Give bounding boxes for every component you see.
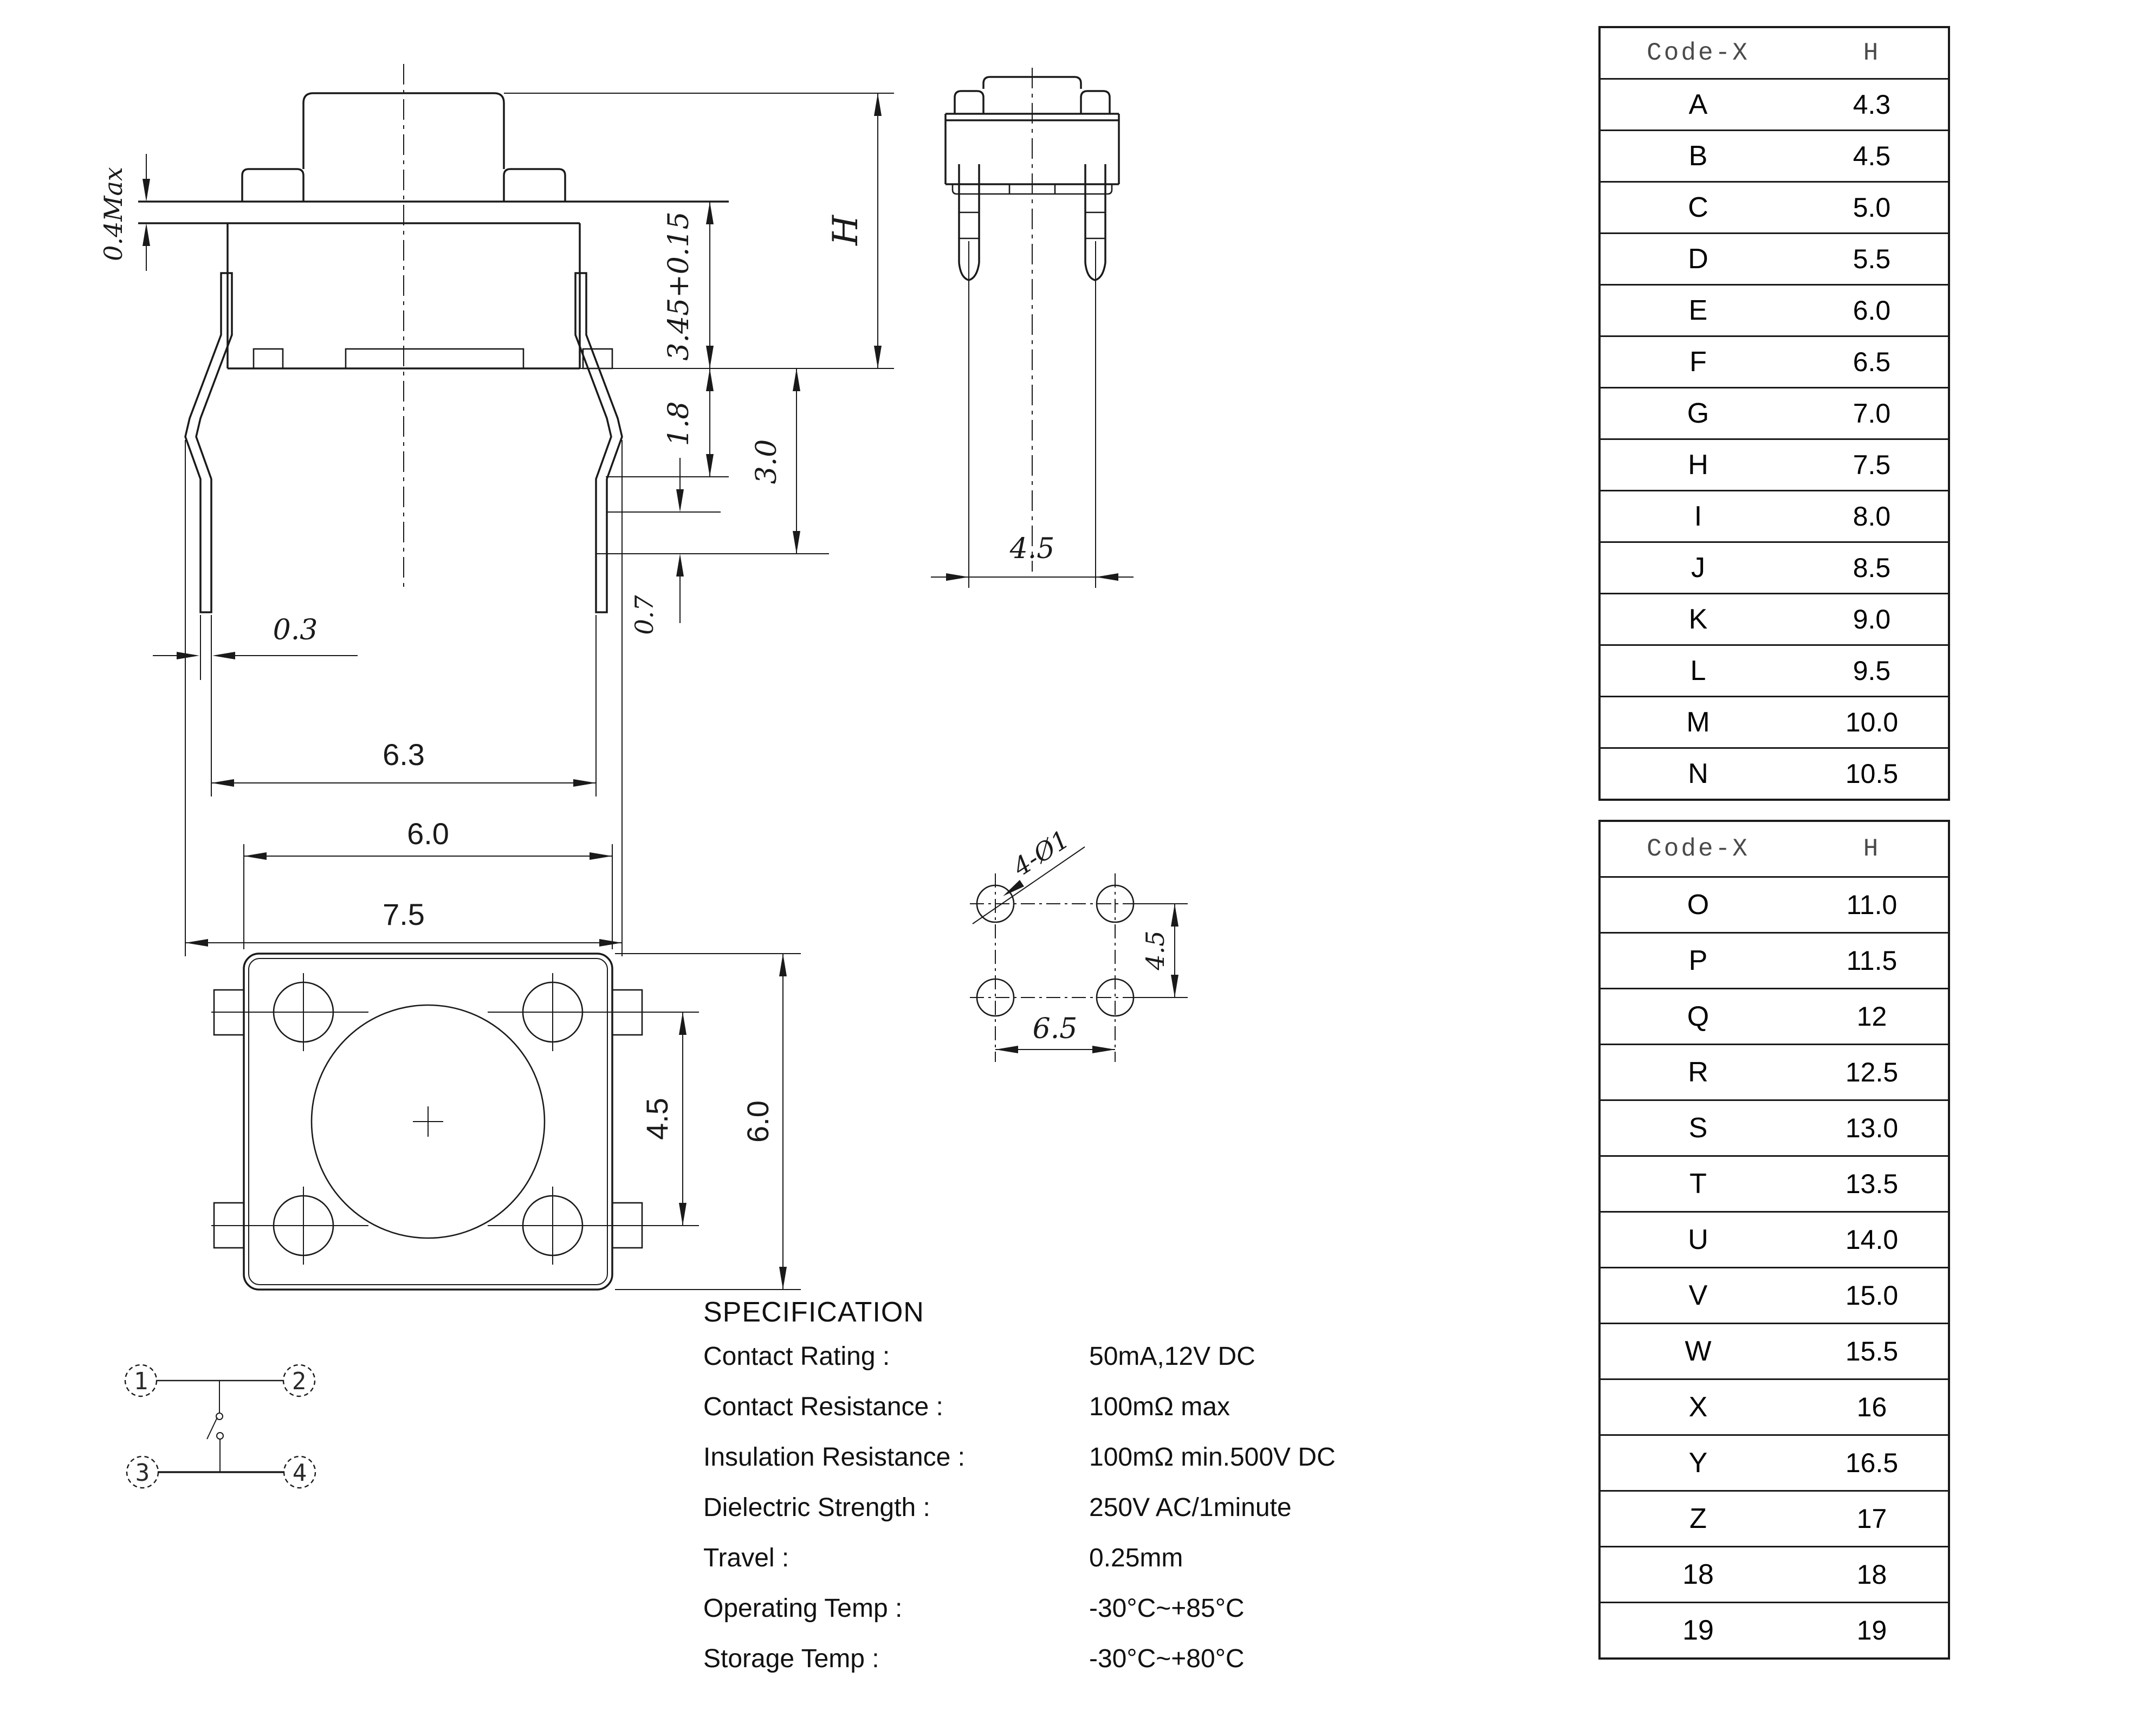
table-row: D5.5	[1601, 232, 1948, 284]
spec-value: 50mA,12V DC	[1089, 1342, 1516, 1372]
spec-value: 0.25mm	[1089, 1543, 1516, 1573]
code-cell: E	[1601, 286, 1796, 335]
table-row: M10.0	[1601, 696, 1948, 747]
spec-label: Dielectric Strength :	[703, 1493, 1089, 1523]
schematic-wires	[156, 1381, 284, 1472]
h-cell: 12	[1796, 989, 1948, 1044]
side-view-legs	[185, 273, 829, 612]
dim-cap-label: 0.4Max	[99, 167, 128, 261]
h-cell: 6.5	[1796, 337, 1948, 387]
h-cell: 14.0	[1796, 1213, 1948, 1267]
spec-label: Contact Resistance :	[703, 1392, 1089, 1422]
h-cell: 13.5	[1796, 1157, 1948, 1211]
h-cell: 5.5	[1796, 234, 1948, 284]
table-row: A4.3	[1601, 78, 1948, 129]
pin1-label: 1	[134, 1368, 148, 1395]
pin3-label: 3	[135, 1459, 150, 1487]
h-cell: 7.5	[1796, 440, 1948, 490]
specification-block: SPECIFICATION Contact Rating : 50mA,12V …	[703, 1296, 1516, 1694]
spec-label: Storage Temp :	[703, 1644, 1089, 1674]
code-cell: X	[1601, 1380, 1796, 1434]
code-cell: 19	[1601, 1603, 1796, 1657]
h-cell: 15.0	[1796, 1268, 1948, 1323]
h-cell: 16	[1796, 1380, 1948, 1434]
col-header-code: Code-X	[1601, 822, 1796, 876]
h-cell: 17	[1796, 1492, 1948, 1546]
table-row: L9.5	[1601, 644, 1948, 696]
table-row: E6.0	[1601, 284, 1948, 335]
h-cell: 19	[1796, 1603, 1948, 1657]
spec-row: Contact Resistance : 100mΩ max	[703, 1392, 1516, 1442]
code-cell: D	[1601, 234, 1796, 284]
code-cell: B	[1601, 131, 1796, 181]
dim-step-label: 0.7	[630, 595, 659, 635]
dim-pin-spacing-label: 4.5	[1009, 533, 1055, 565]
code-cell: F	[1601, 337, 1796, 387]
code-cell: N	[1601, 749, 1796, 799]
dim-total-height-label: H	[826, 215, 866, 246]
code-cell: U	[1601, 1213, 1796, 1267]
table-row: T13.5	[1601, 1155, 1948, 1211]
h-cell: 12.5	[1796, 1045, 1948, 1099]
dim-base-label: 1.8	[663, 401, 695, 446]
spec-row: Travel : 0.25mm	[703, 1543, 1516, 1594]
pcb-layout-drawing: 4-Ø1 4.5 6.5	[948, 813, 1571, 1327]
dim-hole-spacing-label: 4.5	[640, 1098, 674, 1140]
h-cell: 8.5	[1796, 543, 1948, 593]
table-row: H7.5	[1601, 438, 1948, 490]
table-row: I8.0	[1601, 490, 1948, 541]
code-cell: O	[1601, 878, 1796, 932]
spec-row: Contact Rating : 50mA,12V DC	[703, 1342, 1516, 1392]
dim-pcb-vertical-label: 4.5	[1141, 930, 1170, 970]
table-row: N10.5	[1601, 747, 1948, 799]
dim-top-width-label: 6.0	[407, 817, 449, 851]
col-header-h: H	[1796, 822, 1948, 876]
code-cell: M	[1601, 697, 1796, 747]
h-cell: 10.5	[1796, 749, 1948, 799]
code-cell: I	[1601, 491, 1796, 541]
side-view-body-outline	[138, 93, 729, 368]
table-row: G7.0	[1601, 387, 1948, 438]
code-cell: Z	[1601, 1492, 1796, 1546]
h-cell: 7.0	[1796, 388, 1948, 438]
h-cell: 11.0	[1796, 878, 1948, 932]
table-row: O11.0	[1601, 876, 1948, 932]
table-row: X16	[1601, 1378, 1948, 1434]
spec-label: Operating Temp :	[703, 1594, 1089, 1624]
code-cell: K	[1601, 594, 1796, 644]
specification-title: SPECIFICATION	[703, 1296, 1516, 1329]
code-height-table-2: Code-X H O11.0 P11.5 Q12 R12.5 S13.0 T13…	[1598, 820, 1950, 1660]
h-cell: 10.0	[1796, 697, 1948, 747]
h-cell: 15.5	[1796, 1324, 1948, 1378]
switch-symbol-icon	[207, 1413, 223, 1439]
spec-value: -30°C~+85°C	[1089, 1594, 1516, 1624]
h-cell: 18	[1796, 1547, 1948, 1602]
h-cell: 4.5	[1796, 131, 1948, 181]
spec-row: Operating Temp : -30°C~+85°C	[703, 1594, 1516, 1644]
spec-row: Insulation Resistance : 100mΩ min.500V D…	[703, 1442, 1516, 1493]
circuit-schematic: 1 2 3 4	[81, 1327, 515, 1571]
code-cell: L	[1601, 646, 1796, 696]
spec-row: Dielectric Strength : 250V AC/1minute	[703, 1493, 1516, 1543]
table-row: U14.0	[1601, 1211, 1948, 1267]
spec-value: 250V AC/1minute	[1089, 1493, 1516, 1523]
code-cell: Y	[1601, 1436, 1796, 1490]
h-cell: 5.0	[1796, 183, 1948, 232]
code-cell: T	[1601, 1157, 1796, 1211]
h-cell: 11.5	[1796, 934, 1948, 988]
pcb-holes-label: 4-Ø1	[1007, 824, 1074, 882]
table-row: K9.0	[1601, 593, 1948, 644]
table-header-row: Code-X H	[1601, 28, 1948, 78]
h-cell: 9.0	[1796, 594, 1948, 644]
table-row: V15.0	[1601, 1267, 1948, 1323]
table-row: J8.5	[1601, 541, 1948, 593]
h-cell: 9.5	[1796, 646, 1948, 696]
code-cell: R	[1601, 1045, 1796, 1099]
code-cell: S	[1601, 1101, 1796, 1155]
front-view-drawing: 4.5	[921, 54, 1463, 867]
code-cell: C	[1601, 183, 1796, 232]
table-row: C5.0	[1601, 181, 1948, 232]
dim-body-label: 3.45+0.15	[663, 211, 695, 360]
dim-standoff-label: 3.0	[750, 439, 783, 484]
h-cell: 8.0	[1796, 491, 1948, 541]
code-cell: V	[1601, 1268, 1796, 1323]
top-view-drawing: 6.0 4.5 6.0	[81, 786, 948, 1338]
code-cell: J	[1601, 543, 1796, 593]
code-cell: Q	[1601, 989, 1796, 1044]
code-cell: P	[1601, 934, 1796, 988]
dim-top-height-label: 6.0	[741, 1100, 775, 1143]
h-cell: 16.5	[1796, 1436, 1948, 1490]
code-cell: A	[1601, 80, 1796, 129]
top-view-holes	[211, 973, 699, 1265]
table-row: S13.0	[1601, 1099, 1948, 1155]
table-row: R12.5	[1601, 1044, 1948, 1099]
code-cell: G	[1601, 388, 1796, 438]
col-header-code: Code-X	[1601, 28, 1796, 78]
table-header-row: Code-X H	[1601, 822, 1948, 876]
spec-label: Travel :	[703, 1543, 1089, 1573]
datasheet-page: 0.4Max 3.45+0.15 1.8 3.0 H	[0, 0, 2150, 1736]
table-row: W15.5	[1601, 1323, 1948, 1378]
code-height-table-1: Code-X H A4.3 B4.5 C5.0 D5.5 E6.0 F6.5 G…	[1598, 26, 1950, 801]
spec-value: 100mΩ max	[1089, 1392, 1516, 1422]
table-row: P11.5	[1601, 932, 1948, 988]
spec-label: Insulation Resistance :	[703, 1442, 1089, 1473]
pcb-dimensions: 4.5 6.5	[995, 904, 1188, 1053]
pin2-label: 2	[292, 1368, 307, 1395]
table-row: 1919	[1601, 1602, 1948, 1657]
table-row: 1818	[1601, 1546, 1948, 1602]
table-row: Q12	[1601, 988, 1948, 1044]
col-header-h: H	[1796, 28, 1948, 78]
h-cell: 4.3	[1796, 80, 1948, 129]
table-row: F6.5	[1601, 335, 1948, 387]
spec-value: -30°C~+80°C	[1089, 1644, 1516, 1674]
dim-pcb-horizontal-label: 6.5	[1033, 1013, 1078, 1045]
spec-value: 100mΩ min.500V DC	[1089, 1442, 1516, 1473]
h-cell: 13.0	[1796, 1101, 1948, 1155]
spec-label: Contact Rating :	[703, 1342, 1089, 1372]
code-cell: 18	[1601, 1547, 1796, 1602]
table-row: Y16.5	[1601, 1434, 1948, 1490]
dim-tip-label: 0.3	[273, 614, 318, 646]
pcb-leader: 4-Ø1	[973, 824, 1085, 924]
h-cell: 6.0	[1796, 286, 1948, 335]
table-row: B4.5	[1601, 129, 1948, 181]
dim-span-inner-label: 6.3	[383, 737, 425, 772]
code-cell: H	[1601, 440, 1796, 490]
code-cell: W	[1601, 1324, 1796, 1378]
spec-row: Storage Temp : -30°C~+80°C	[703, 1644, 1516, 1694]
table-row: Z17	[1601, 1490, 1948, 1546]
pin4-label: 4	[293, 1459, 307, 1487]
